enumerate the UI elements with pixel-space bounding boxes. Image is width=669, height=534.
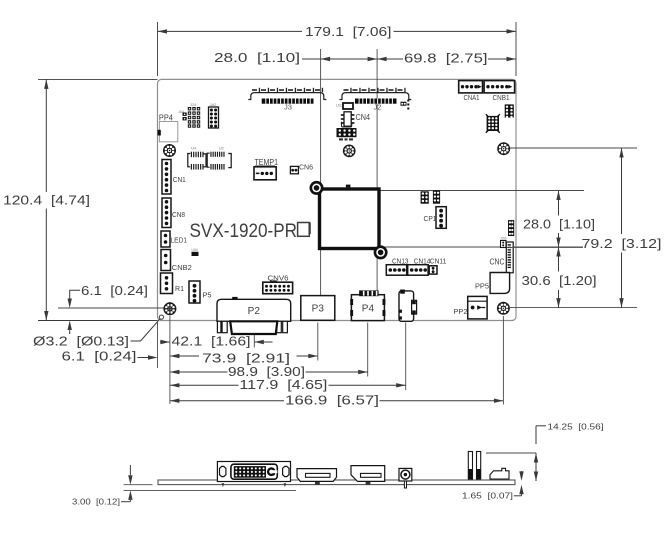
svg-text:179.1 [7.06]: 179.1 [7.06] <box>305 24 392 39</box>
svg-text:30.6 [1.20]: 30.6 [1.20] <box>522 273 597 288</box>
svg-text:LB4: LB4 <box>192 248 198 252</box>
svg-text:U2: U2 <box>219 146 225 151</box>
svg-text:42.1 [1.66]: 42.1 [1.66] <box>172 333 251 348</box>
svg-text:14.25 [0.56]: 14.25 [0.56] <box>548 421 604 431</box>
svg-text:120.4 [4.74]: 120.4 [4.74] <box>3 192 90 207</box>
svg-text:P3: P3 <box>312 304 325 315</box>
svg-text:CN8: CN8 <box>172 210 185 219</box>
svg-text:J26: J26 <box>500 235 507 240</box>
svg-text:R1: R1 <box>175 284 184 293</box>
svg-text:CP1: CP1 <box>424 214 437 223</box>
svg-text:P2: P2 <box>248 306 261 317</box>
svg-text:J2: J2 <box>374 105 382 112</box>
svg-text:Ø3.2 [Ø0.13]: Ø3.2 [Ø0.13] <box>33 334 129 349</box>
svg-text:CNA1: CNA1 <box>464 93 480 102</box>
svg-text:CNC: CNC <box>490 257 505 266</box>
svg-text:JA2: JA2 <box>210 102 218 107</box>
svg-text:CNB2: CNB2 <box>172 263 192 272</box>
svg-text:6.1 [0.24]: 6.1 [0.24] <box>62 349 137 364</box>
svg-text:J24: J24 <box>190 102 197 107</box>
svg-text:CNB1: CNB1 <box>493 93 510 102</box>
svg-text:CN6: CN6 <box>299 162 313 171</box>
svg-text:166.9 [6.57]: 166.9 [6.57] <box>285 392 379 407</box>
svg-text:LED1: LED1 <box>171 235 188 244</box>
svg-text:3.00 [0.12]: 3.00 [0.12] <box>72 497 120 507</box>
svg-text:P5: P5 <box>203 291 212 300</box>
svg-text:1.65 [0.07]: 1.65 [0.07] <box>462 491 513 501</box>
svg-text:117.9 [4.65]: 117.9 [4.65] <box>239 377 327 392</box>
svg-text:SVX-1920-PR: SVX-1920-PR <box>190 220 298 242</box>
svg-text:28.0 [1.10]: 28.0 [1.10] <box>523 217 595 232</box>
svg-text:79.2 [3.12]: 79.2 [3.12] <box>582 236 662 251</box>
svg-text:CN4: CN4 <box>356 113 371 122</box>
svg-text:CN11: CN11 <box>430 257 447 266</box>
svg-text:P4: P4 <box>362 304 375 315</box>
svg-text:U4: U4 <box>191 146 197 151</box>
svg-text:PP5: PP5 <box>475 281 489 290</box>
svg-text:J3: J3 <box>284 105 292 112</box>
svg-text:69.8 [2.75]: 69.8 [2.75] <box>404 51 488 66</box>
svg-text:6.1 [0.24]: 6.1 [0.24] <box>81 283 148 298</box>
svg-text:28.0 [1.10]: 28.0 [1.10] <box>214 50 300 65</box>
svg-text:CN1: CN1 <box>173 175 186 184</box>
svg-text:PP2: PP2 <box>454 307 468 316</box>
